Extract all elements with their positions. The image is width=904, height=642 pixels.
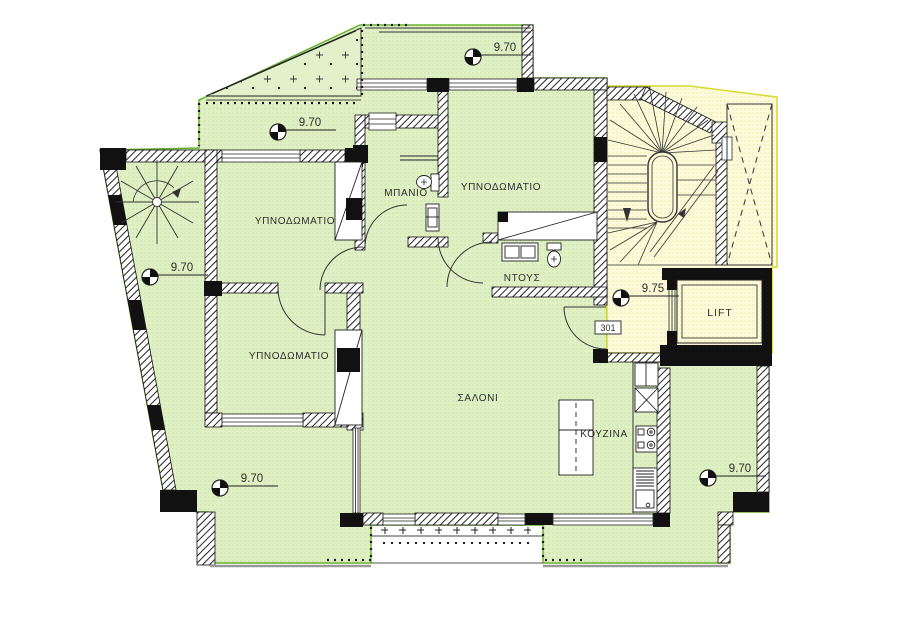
unit-number-text: 301 <box>600 323 615 333</box>
floor-plan: ΥΠΝΟΔΩΜΑΤΙΟ ΥΠΝΟΔΩΜΑΤΙΟ ΥΠΝΟΔΩΜΑΤΙΟ ΜΠΑΝ… <box>0 0 904 642</box>
level-value: 9.75 <box>642 283 664 295</box>
level-value: 9.70 <box>729 463 751 475</box>
kitchen-sink-icon <box>633 468 657 512</box>
room-label-living: ΣΑΛΟΝΙ <box>458 393 499 404</box>
unit-number-tag: 301 <box>595 321 621 334</box>
room-label-kitchen: ΚΟΥΖΙΝΑ <box>580 429 627 440</box>
planter-triangle <box>206 28 361 100</box>
level-value: 9.70 <box>494 42 516 54</box>
room-label-bedroom-top: ΥΠΝΟΔΩΜΑΤΙΟ <box>461 182 541 193</box>
cooktop-icon <box>636 426 657 452</box>
room-label-bedroom-lower-left: ΥΠΝΟΔΩΜΑΤΙΟ <box>249 351 329 362</box>
level-value: 9.70 <box>241 473 263 485</box>
room-label-bathroom: ΜΠΑΝΙΟ <box>384 188 428 199</box>
level-value: 9.70 <box>299 117 321 129</box>
toilet-icon-2 <box>547 243 561 267</box>
floor-plan-drawing: ΥΠΝΟΔΩΜΑΤΙΟ ΥΠΝΟΔΩΜΑΤΙΟ ΥΠΝΟΔΩΜΑΤΙΟ ΜΠΑΝ… <box>0 0 904 642</box>
kitchen-counter <box>633 362 658 513</box>
vanity-icon <box>502 243 538 261</box>
room-label-lift: LIFT <box>707 307 733 319</box>
level-value: 9.70 <box>171 262 193 274</box>
bath-sink-icon <box>426 204 439 231</box>
room-label-shower: ΝΤΟΥΣ <box>504 273 540 284</box>
room-label-bedroom-upper-left: ΥΠΝΟΔΩΜΑΤΙΟ <box>255 216 335 227</box>
railing-cross-marks <box>381 527 531 534</box>
